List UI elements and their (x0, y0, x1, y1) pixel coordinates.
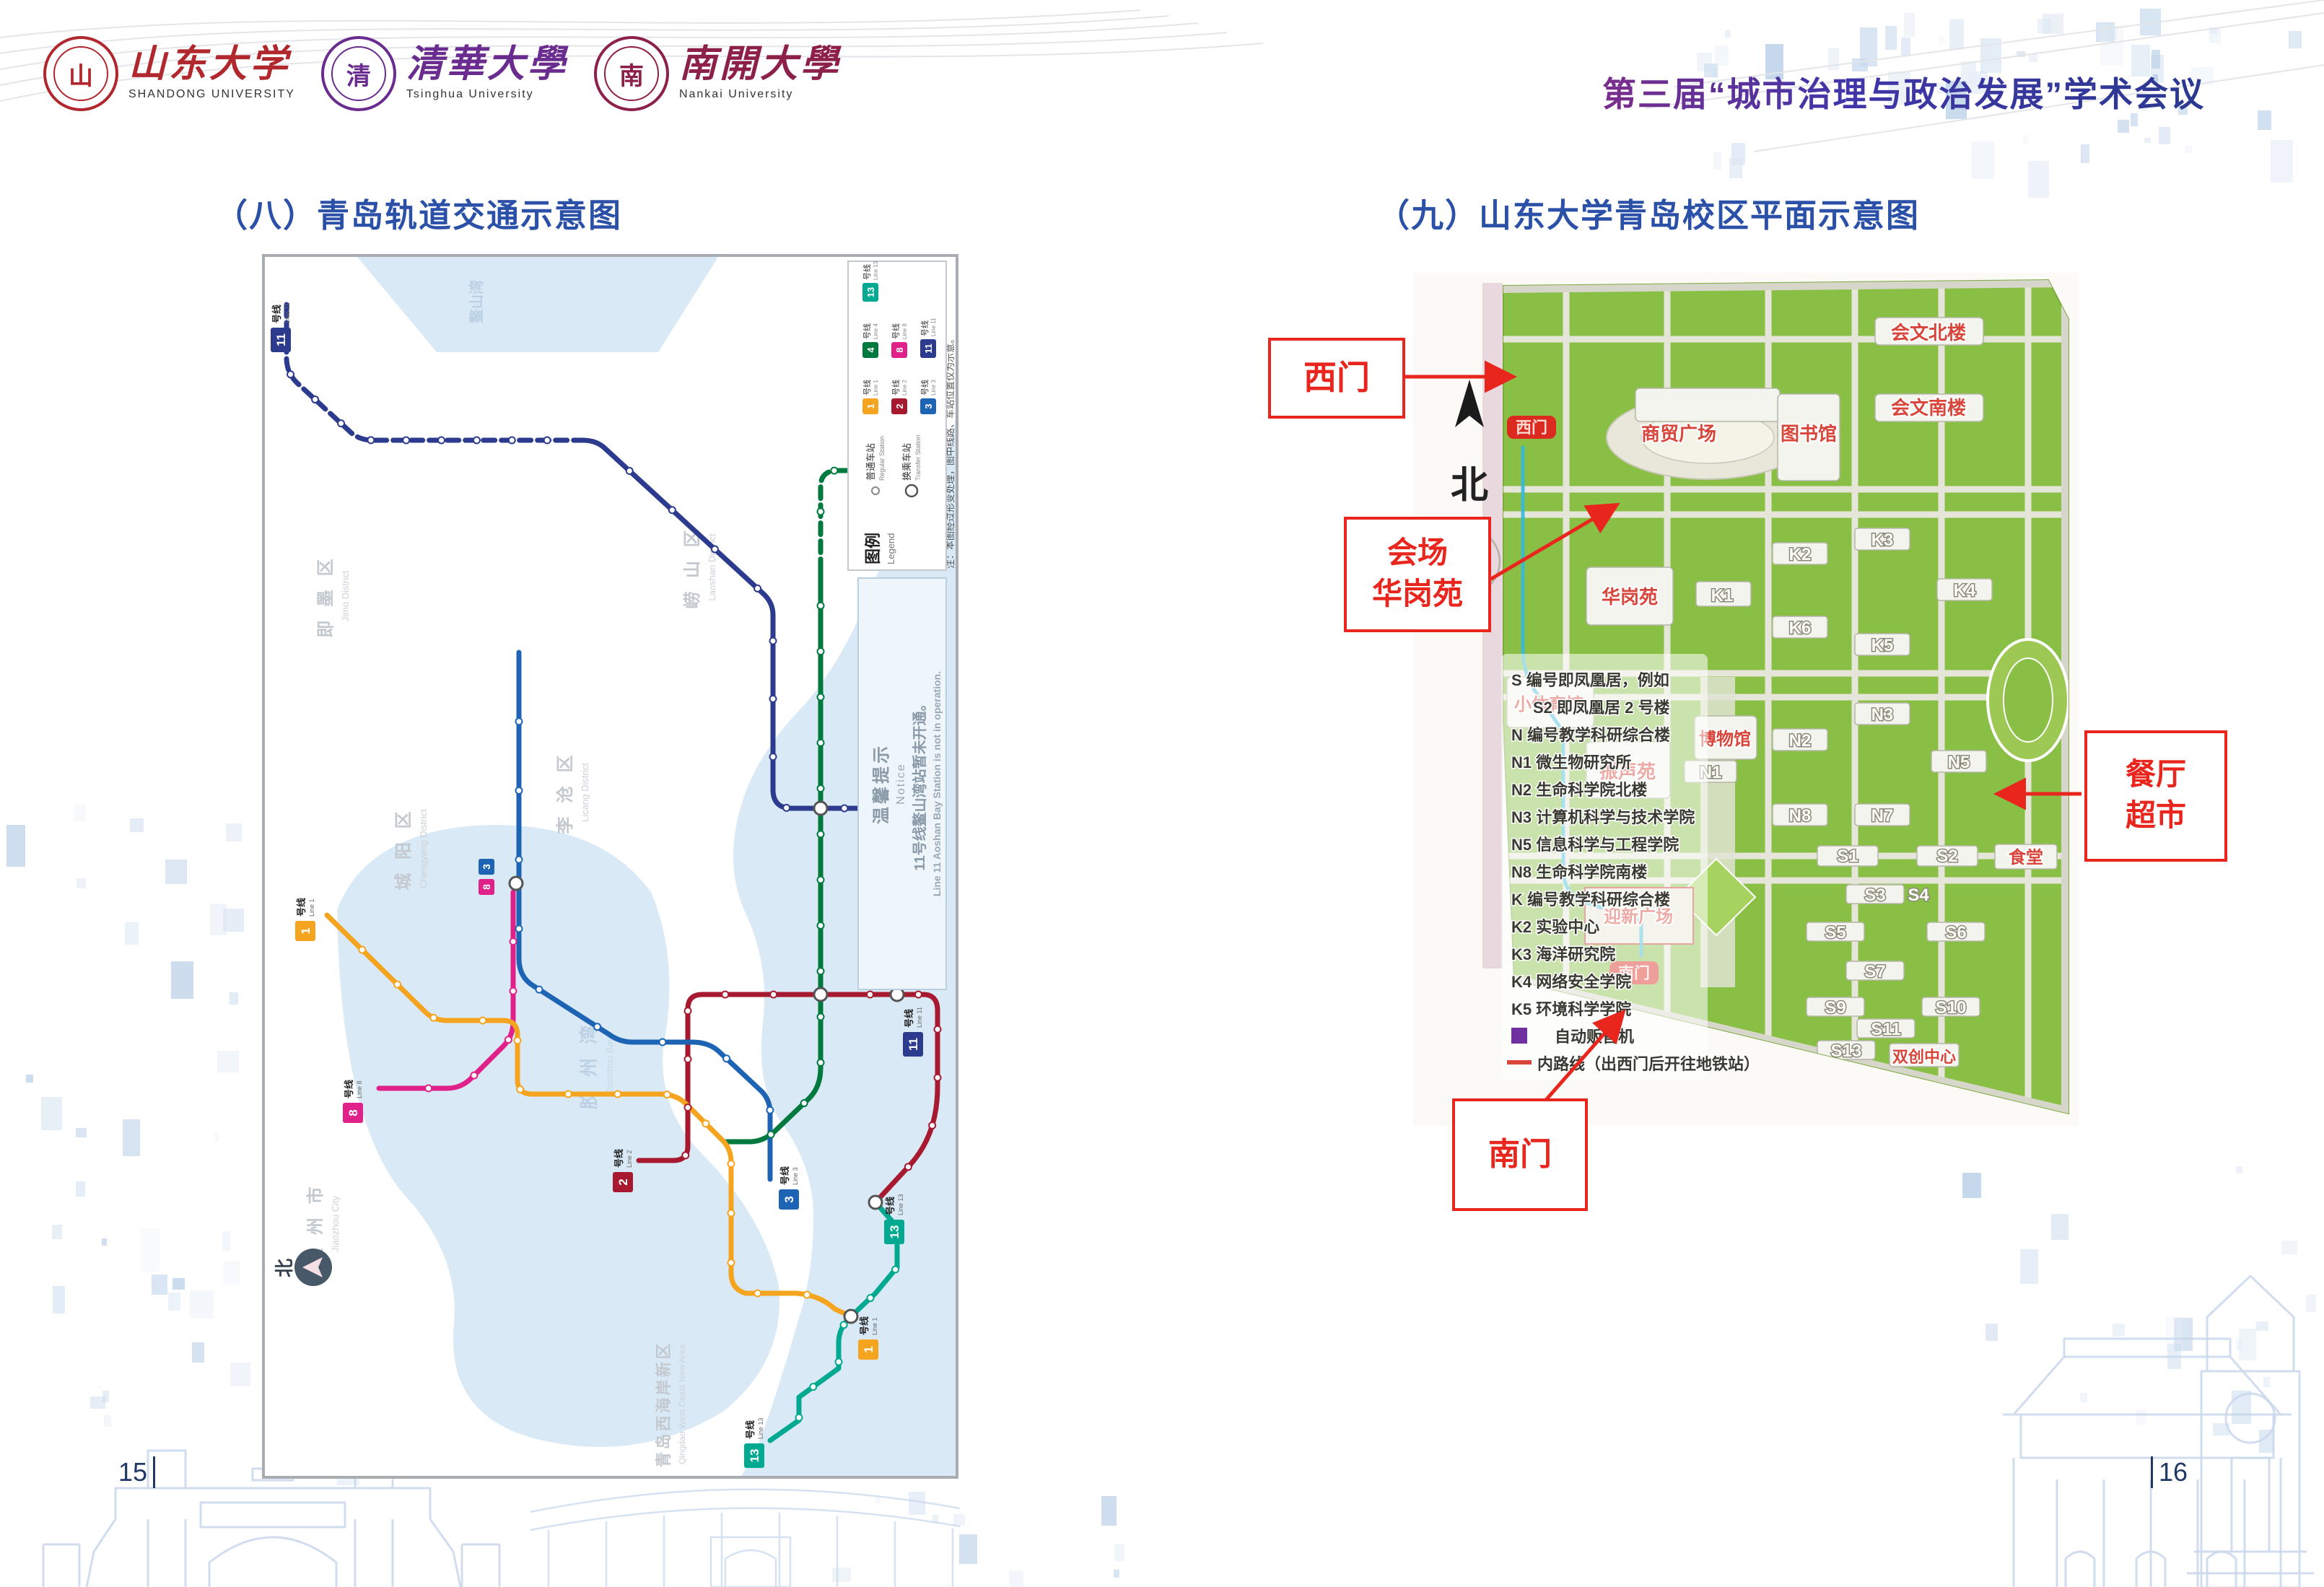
svg-text:11: 11 (923, 344, 934, 354)
legend-regular-cn: 普通车站 (865, 443, 876, 481)
annotation-venue: 会场 华岗苑 (1344, 517, 1491, 632)
metro-station-dot (818, 508, 824, 515)
building-code: S4 (1908, 886, 1929, 905)
metro-station-dot (359, 947, 365, 953)
metro-station-dot (702, 1120, 709, 1127)
svg-text:Line 13: Line 13 (897, 1194, 904, 1215)
metro-station-dot (801, 1100, 808, 1106)
building-code: N5 (1948, 753, 1970, 772)
page-number-right-value: 16 (2159, 1457, 2188, 1487)
building-code: N7 (1871, 806, 1894, 826)
building-label: 图书馆 (1781, 423, 1837, 445)
transfer-station (844, 1310, 857, 1323)
nankai-university-en: Nankai University (679, 88, 841, 101)
svg-text:Line 11: Line 11 (930, 318, 937, 336)
metro-station-dot (312, 396, 318, 403)
metro-station-dot (770, 696, 777, 702)
metro-station-dot (818, 877, 824, 883)
page-number-divider (2151, 1456, 2153, 1488)
svg-text:1: 1 (862, 1346, 875, 1352)
legend-line: K3 海洋研究院 (1511, 945, 1615, 963)
metro-station-dot (394, 982, 401, 988)
metro-station-dot (770, 753, 777, 760)
legend-line: S2 即凤凰居 2 号楼 (1533, 699, 1669, 717)
metro-station-dot (425, 1085, 432, 1092)
building-code: S1 (1837, 847, 1858, 866)
metro-station-dot (685, 1104, 691, 1111)
metro-station-dot (430, 1015, 437, 1021)
svg-text:号线: 号线 (271, 305, 282, 323)
transfer-station (814, 988, 827, 1001)
legend-line: N5 信息科学与工程学院 (1511, 836, 1679, 854)
building-label: 华岗苑 (1602, 586, 1658, 608)
building-code: N8 (1789, 806, 1812, 826)
metro-station-dot (685, 1007, 691, 1014)
metro-notice: 温馨提示 Notice 11号线鳌山湾站暂未开通。 Line 11 Aoshan… (858, 578, 946, 989)
compass-north-label: 北 (274, 1259, 295, 1277)
legend-line: N2 生命科学院北楼 (1511, 781, 1647, 799)
metro-station-dot (516, 787, 523, 794)
svg-text:号线: 号线 (745, 1420, 756, 1439)
shandong-university-cn: 山东大学 (128, 46, 295, 84)
header-logos: 山 山东大学 SHANDONG UNIVERSITY 清 清華大學 Tsingh… (43, 36, 841, 111)
building-code: S6 (1945, 923, 1966, 943)
svg-text:8: 8 (346, 1109, 360, 1116)
metro-station-dot (770, 992, 777, 998)
page-number-right: 16 (2151, 1456, 2188, 1488)
svg-text:号线: 号线 (862, 380, 872, 395)
metro-station-dot (614, 1091, 621, 1098)
district-label: 城 阳 区 (393, 807, 414, 890)
metro-station-dot (892, 1266, 899, 1272)
legend-line: N8 生命科学院南楼 (1511, 863, 1647, 881)
metro-station-dot (544, 437, 551, 444)
svg-text:3: 3 (481, 864, 492, 870)
metro-station-dot (509, 437, 515, 444)
metro-station-dot (867, 992, 873, 998)
page-number-divider (153, 1456, 155, 1488)
building-code: K2 (1789, 545, 1812, 564)
metro-station-dot (841, 1321, 847, 1328)
monument-watermark (2187, 1276, 2314, 1587)
svg-text:Line 8: Line 8 (901, 323, 908, 339)
svg-text:1: 1 (865, 403, 876, 408)
metro-station-dot (516, 925, 523, 932)
metro-station-dot (728, 1210, 735, 1217)
auditorium-watermark (2003, 1339, 2292, 1587)
metro-station-dot (728, 1160, 735, 1167)
legend-line: N1 微生物研究所 (1511, 753, 1631, 771)
legend-transfer-cn: 换乘车站 (901, 443, 912, 481)
building-code: S11 (1871, 1020, 1900, 1039)
svg-text:Line 8: Line 8 (356, 1080, 363, 1098)
metro-station-dot (287, 371, 294, 377)
svg-text:Line 1: Line 1 (873, 380, 879, 395)
metro-station-dot (685, 1056, 691, 1062)
metro-station-dot (403, 437, 409, 444)
vending-machine-icon (1511, 1028, 1527, 1044)
metro-station-dot (818, 785, 824, 792)
badge-line-3-small: 3 (479, 859, 494, 875)
metro-station-dot (841, 805, 847, 812)
svg-text:3: 3 (782, 1196, 796, 1202)
legend-line: K 编号教学科研综合楼 (1511, 891, 1670, 909)
legend-line: K4 网络安全学院 (1511, 973, 1631, 991)
svg-text:号线: 号线 (296, 898, 307, 917)
annotation-canteen: 餐厅 超市 (2084, 730, 2227, 862)
section-title-campus: （九）山东大学青岛校区平面示意图 (1377, 189, 1920, 236)
colonnade-watermark (530, 1490, 960, 1587)
svg-text:号线: 号线 (779, 1166, 790, 1185)
building-code: K1 (1711, 586, 1734, 605)
district-label-en: Jiaozhou City (330, 1195, 341, 1252)
building-code: K4 (1954, 581, 1976, 600)
metro-station-dot (915, 992, 922, 998)
nankai-university-cn: 南開大學 (679, 46, 841, 84)
legend-line: 自动贩售机 (1555, 1028, 1634, 1046)
building-label: 商贸广场 (1641, 423, 1716, 445)
water-label-en: Jiaozhou Bay (604, 1036, 615, 1093)
metro-station-dot (517, 1086, 523, 1093)
metro-station-dot (768, 1131, 774, 1137)
badge-line-1: 1 号线 Line 1 (295, 898, 315, 941)
building-code: S2 (1936, 847, 1957, 866)
metro-station-dot (626, 468, 633, 474)
svg-text:13: 13 (748, 1449, 761, 1463)
svg-text:Line 11: Line 11 (916, 1007, 923, 1028)
svg-text:号线: 号线 (891, 380, 901, 395)
metro-station-dot (505, 1036, 512, 1043)
page-number-left-value: 15 (118, 1457, 147, 1487)
svg-text:13: 13 (888, 1225, 901, 1239)
logo-shandong-university: 山 山东大学 SHANDONG UNIVERSITY (43, 36, 295, 111)
annotation-canteen-line1: 餐厅 (2126, 755, 2186, 796)
metro-station-dot (728, 1259, 735, 1266)
metro-station-dot (818, 1014, 824, 1020)
metro-station-dot (818, 1059, 824, 1066)
notice-line-cn: 11号线鳌山湾站暂未开通。 (911, 696, 928, 870)
transfer-station (510, 877, 523, 890)
legend-title-en: Legend (886, 533, 896, 564)
svg-text:号线: 号线 (919, 380, 930, 395)
building-code: K3 (1871, 530, 1894, 550)
conference-title: 第三届“城市治理与政治发展”学术会议 (1602, 66, 2205, 116)
district-label-en: Jimo District (340, 570, 351, 621)
metro-station-dot (516, 718, 523, 725)
metro-station-dot (754, 1290, 761, 1297)
district-label-en: Chengyang District (418, 809, 429, 888)
metro-station-dot (682, 1152, 689, 1158)
svg-text:号线: 号线 (862, 264, 872, 280)
badge-line-3: 3 号线 Line 3 (779, 1166, 799, 1210)
metro-station-dot (516, 857, 523, 863)
metro-station-dot (754, 585, 761, 592)
metro-map-svg: 鳌山湾 黄 海 The Yellow Sea 胶 州 湾 Jiaozhou Ba… (265, 257, 956, 1476)
district-label-en: Qingdao West Coast New Area (677, 1345, 687, 1464)
annotation-west-gate-label: 西门 (1303, 356, 1370, 401)
campus-compass-north: 北 (1451, 465, 1488, 507)
annotation-venue-line1: 会场 (1387, 533, 1448, 574)
svg-text:Line 1: Line 1 (871, 1317, 878, 1335)
svg-text:8: 8 (481, 884, 492, 890)
svg-text:号线: 号线 (862, 323, 872, 339)
building-code: S13 (1831, 1041, 1862, 1061)
metro-station-dot (722, 992, 728, 998)
notice-title-cn: 温馨提示 (872, 743, 891, 824)
metro-station-dot (338, 420, 344, 427)
annotation-south-gate: 南门 (1452, 1098, 1588, 1211)
metro-station-dot (804, 1292, 811, 1298)
annotation-west-gate: 西门 (1268, 338, 1405, 419)
tsinghua-university-cn: 清華大學 (406, 46, 568, 84)
building-code: N2 (1789, 731, 1812, 751)
svg-text:Line 4: Line 4 (873, 323, 879, 339)
transfer-station-icon (906, 485, 917, 497)
svg-text:Line 1: Line 1 (308, 899, 315, 917)
metro-station-dot (818, 740, 824, 746)
district-label-en: Licang District (580, 763, 590, 822)
metro-station-dot (818, 603, 824, 609)
metro-station-dot (868, 1295, 874, 1301)
metro-station-dot (565, 1091, 572, 1098)
metro-station-dot (831, 468, 837, 474)
metro-station-dot (818, 694, 824, 700)
regular-station-icon (872, 487, 879, 494)
building-label: 会文南楼 (1891, 397, 1966, 419)
metro-station-dot (536, 987, 542, 993)
svg-text:号线: 号线 (344, 1080, 354, 1098)
jiaozhou-bay-shape (337, 825, 779, 1447)
svg-text:号线: 号线 (904, 1009, 914, 1028)
metro-station-dot (796, 1415, 803, 1421)
annotation-canteen-line2: 超市 (2126, 796, 2186, 837)
building-code: S9 (1825, 998, 1845, 1018)
svg-text:Line 2: Line 2 (901, 380, 908, 395)
metro-station-dot (594, 1023, 600, 1030)
shandong-university-seal-icon: 山 (43, 36, 118, 111)
logo-nankai-university: 南 南開大學 Nankai University (594, 36, 841, 111)
metro-station-dot (438, 437, 445, 444)
metro-station-dot (810, 1383, 816, 1390)
building-code: S3 (1864, 886, 1885, 905)
metro-station-dot (929, 1122, 935, 1129)
legend-transfer-en: Transfer Station (914, 434, 922, 481)
west-gate-pill: 西门 (1516, 419, 1547, 437)
svg-text:11: 11 (907, 1038, 920, 1051)
transfer-station (814, 802, 827, 815)
metro-station-dot (510, 988, 517, 994)
metro-station-dot (712, 546, 718, 553)
building-label: 会文北楼 (1891, 322, 1966, 344)
metro-station-dot (367, 437, 374, 443)
section-title-metro: （八）青岛轨道交通示意图 (215, 189, 622, 236)
metro-legend: 图例 Legend 普通车站 Regular Station 换乘车站 Tran… (848, 261, 946, 570)
tsinghua-university-seal-icon: 清 (321, 36, 396, 111)
svg-text:8: 8 (894, 347, 905, 352)
metro-map: 鳌山湾 黄 海 The Yellow Sea 胶 州 湾 Jiaozhou Ba… (262, 254, 958, 1479)
building-code: K5 (1871, 636, 1894, 655)
svg-text:号线: 号线 (891, 323, 901, 339)
aoshan-bay-shape (357, 257, 718, 352)
metro-station-dot (473, 437, 480, 444)
svg-text:4: 4 (865, 347, 876, 353)
legend-line: N 编号教学科研综合楼 (1511, 726, 1670, 744)
svg-text:号线: 号线 (885, 1197, 896, 1215)
metro-station-dot (723, 1055, 730, 1062)
svg-text:Line 11: Line 11 (284, 302, 291, 323)
metro-station-dot (659, 1039, 665, 1046)
district-label: 即 墨 区 (316, 554, 336, 637)
legend-line: S 编号即凤凰居，例如 (1511, 671, 1669, 689)
legend-line: 内路线（出西门后开往地铁站） (1537, 1055, 1760, 1073)
nankai-university-seal-icon: 南 (594, 36, 669, 111)
metro-station-dot (818, 968, 824, 974)
metro-station-dot (471, 1072, 477, 1079)
svg-text:Line 13: Line 13 (873, 261, 879, 280)
legend-title-cn: 图例 (864, 533, 882, 564)
annotation-south-gate-label: 南门 (1488, 1133, 1552, 1176)
svg-text:11: 11 (274, 333, 288, 346)
svg-text:1: 1 (299, 927, 313, 934)
legend-line: K5 环境科学学院 (1511, 1000, 1631, 1018)
svg-text:号线: 号线 (919, 320, 930, 336)
building-code: K6 (1789, 618, 1812, 638)
district-label: 青岛西海岸新区 (655, 1341, 673, 1467)
water-label: 鳌山湾 (468, 280, 485, 323)
svg-text:Line 3: Line 3 (792, 1167, 799, 1185)
campus-map: 北 西门 南门 商贸广场 图书馆 会文北楼 会文南楼 华岗苑 振声苑 小体育馆 … (1413, 273, 2079, 1126)
svg-text:Line 3: Line 3 (930, 380, 937, 395)
notice-line-en: Line 11 Aoshan Bay Station is not in ope… (931, 671, 943, 896)
metro-compass: 北 (274, 1249, 332, 1286)
slide-page: { "header": { "logos": [ {"name": "shand… (0, 0, 2324, 1587)
metro-station-dot (905, 1163, 912, 1170)
building-code: S10 (1936, 998, 1967, 1018)
metro-station-dot (935, 1026, 941, 1033)
svg-text:3: 3 (923, 403, 934, 408)
metro-station-dot (818, 922, 824, 929)
transfer-station (869, 1196, 882, 1209)
legend-line: N3 计算机科学与技术学院 (1511, 808, 1695, 826)
metro-station-dot (783, 805, 790, 811)
svg-text:Line 13: Line 13 (757, 1417, 764, 1439)
tsinghua-university-en: Tsinghua University (406, 88, 568, 101)
district-label: 李 沧 区 (555, 751, 575, 834)
badge-line-8-small: 8 (479, 879, 494, 895)
stadium-field (2004, 658, 2053, 742)
metro-station-dot (935, 1075, 941, 1081)
legend-line: K2 实验中心 (1511, 918, 1599, 936)
metro-station-dot (836, 1359, 842, 1365)
metro-station-dot (669, 507, 676, 513)
building-label: 双创中心 (1892, 1048, 1956, 1066)
svg-text:号线: 号线 (859, 1316, 870, 1335)
svg-text:号线: 号线 (613, 1149, 624, 1168)
page-number-left: 15 (118, 1456, 155, 1488)
metro-station-dot (479, 1018, 486, 1024)
svg-text:Line 2: Line 2 (626, 1150, 633, 1168)
metro-station-dot (510, 938, 517, 945)
metro-station-dot (770, 638, 777, 644)
building-code: N3 (1871, 705, 1894, 725)
metro-station-dot (515, 1037, 521, 1044)
metro-station-dot (766, 1107, 773, 1114)
shandong-university-en: SHANDONG UNIVERSITY (128, 88, 295, 101)
building-label: 食堂 (2009, 847, 2043, 867)
campus-map-svg: 北 西门 南门 商贸广场 图书馆 会文北楼 会文南楼 华岗苑 振声苑 小体育馆 … (1413, 273, 2079, 1126)
svg-text:2: 2 (616, 1179, 630, 1185)
metro-station-dot (818, 648, 824, 655)
building-code: S7 (1864, 962, 1885, 982)
metro-station-dot (818, 831, 824, 837)
annotation-venue-line2: 华岗苑 (1372, 574, 1463, 616)
metro-station-dot (664, 1091, 670, 1098)
building-code: S5 (1825, 923, 1845, 943)
logo-tsinghua-university: 清 清華大學 Tsinghua University (321, 36, 568, 111)
legend-regular-en: Regular Station (878, 436, 886, 481)
notice-title-en: Notice (895, 763, 907, 804)
svg-text:13: 13 (865, 287, 876, 297)
svg-text:2: 2 (894, 403, 905, 408)
